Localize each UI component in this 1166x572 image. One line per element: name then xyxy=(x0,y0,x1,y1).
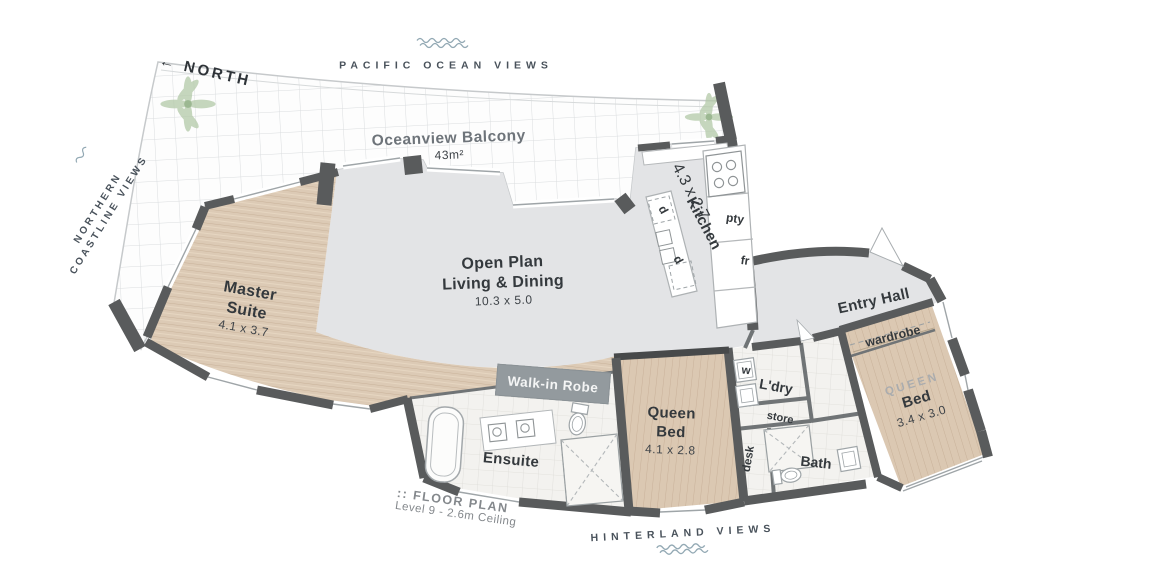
bath-basin-icon xyxy=(837,446,861,471)
laundry-tub-icon xyxy=(736,384,759,408)
ensuite-shower xyxy=(561,434,623,506)
bath-label: Bath xyxy=(800,453,833,474)
wave-icon xyxy=(415,37,471,56)
bathtub-icon xyxy=(424,406,464,483)
fridge-label: fr xyxy=(740,253,751,269)
master-suite-label: Master Suite 4.1 x 3.7 xyxy=(216,277,278,340)
living-dining-label: Open Plan Living & Dining 10.3 x 5.0 xyxy=(441,251,565,310)
floor-plan-canvas: ← NORTH PACIFIC OCEAN VIEWS NORTHERN COA… xyxy=(0,0,1166,572)
wave-icon xyxy=(655,541,712,563)
north-arrow-icon: ← xyxy=(158,52,179,73)
pantry-label: pty xyxy=(725,210,745,227)
washer-label: w xyxy=(741,363,751,378)
view-label-pacific: PACIFIC OCEAN VIEWS xyxy=(339,59,553,72)
floor-plan-drawing xyxy=(0,0,1166,572)
queen-bed-mid-label: Queen Bed 4.1 x 2.8 xyxy=(645,404,697,458)
balcony-label: Oceanview Balcony 43m² xyxy=(371,126,526,166)
